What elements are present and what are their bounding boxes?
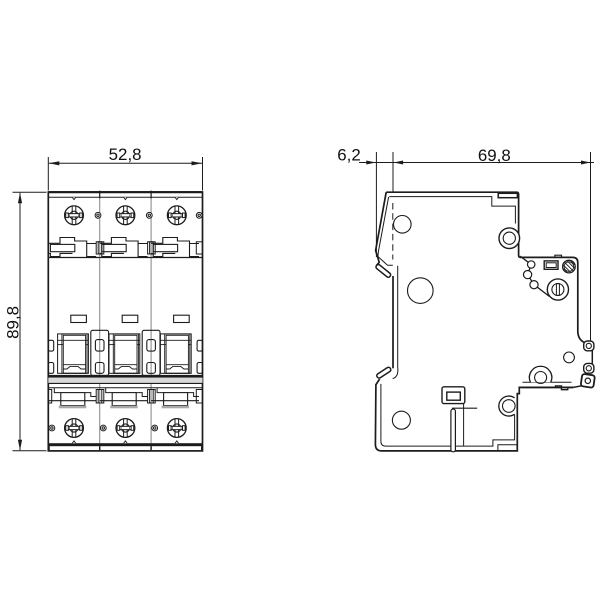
- svg-text:6,2: 6,2: [337, 146, 360, 165]
- svg-text:69,8: 69,8: [478, 146, 511, 165]
- svg-text:52,8: 52,8: [109, 145, 142, 164]
- svg-text:89,8: 89,8: [4, 306, 23, 339]
